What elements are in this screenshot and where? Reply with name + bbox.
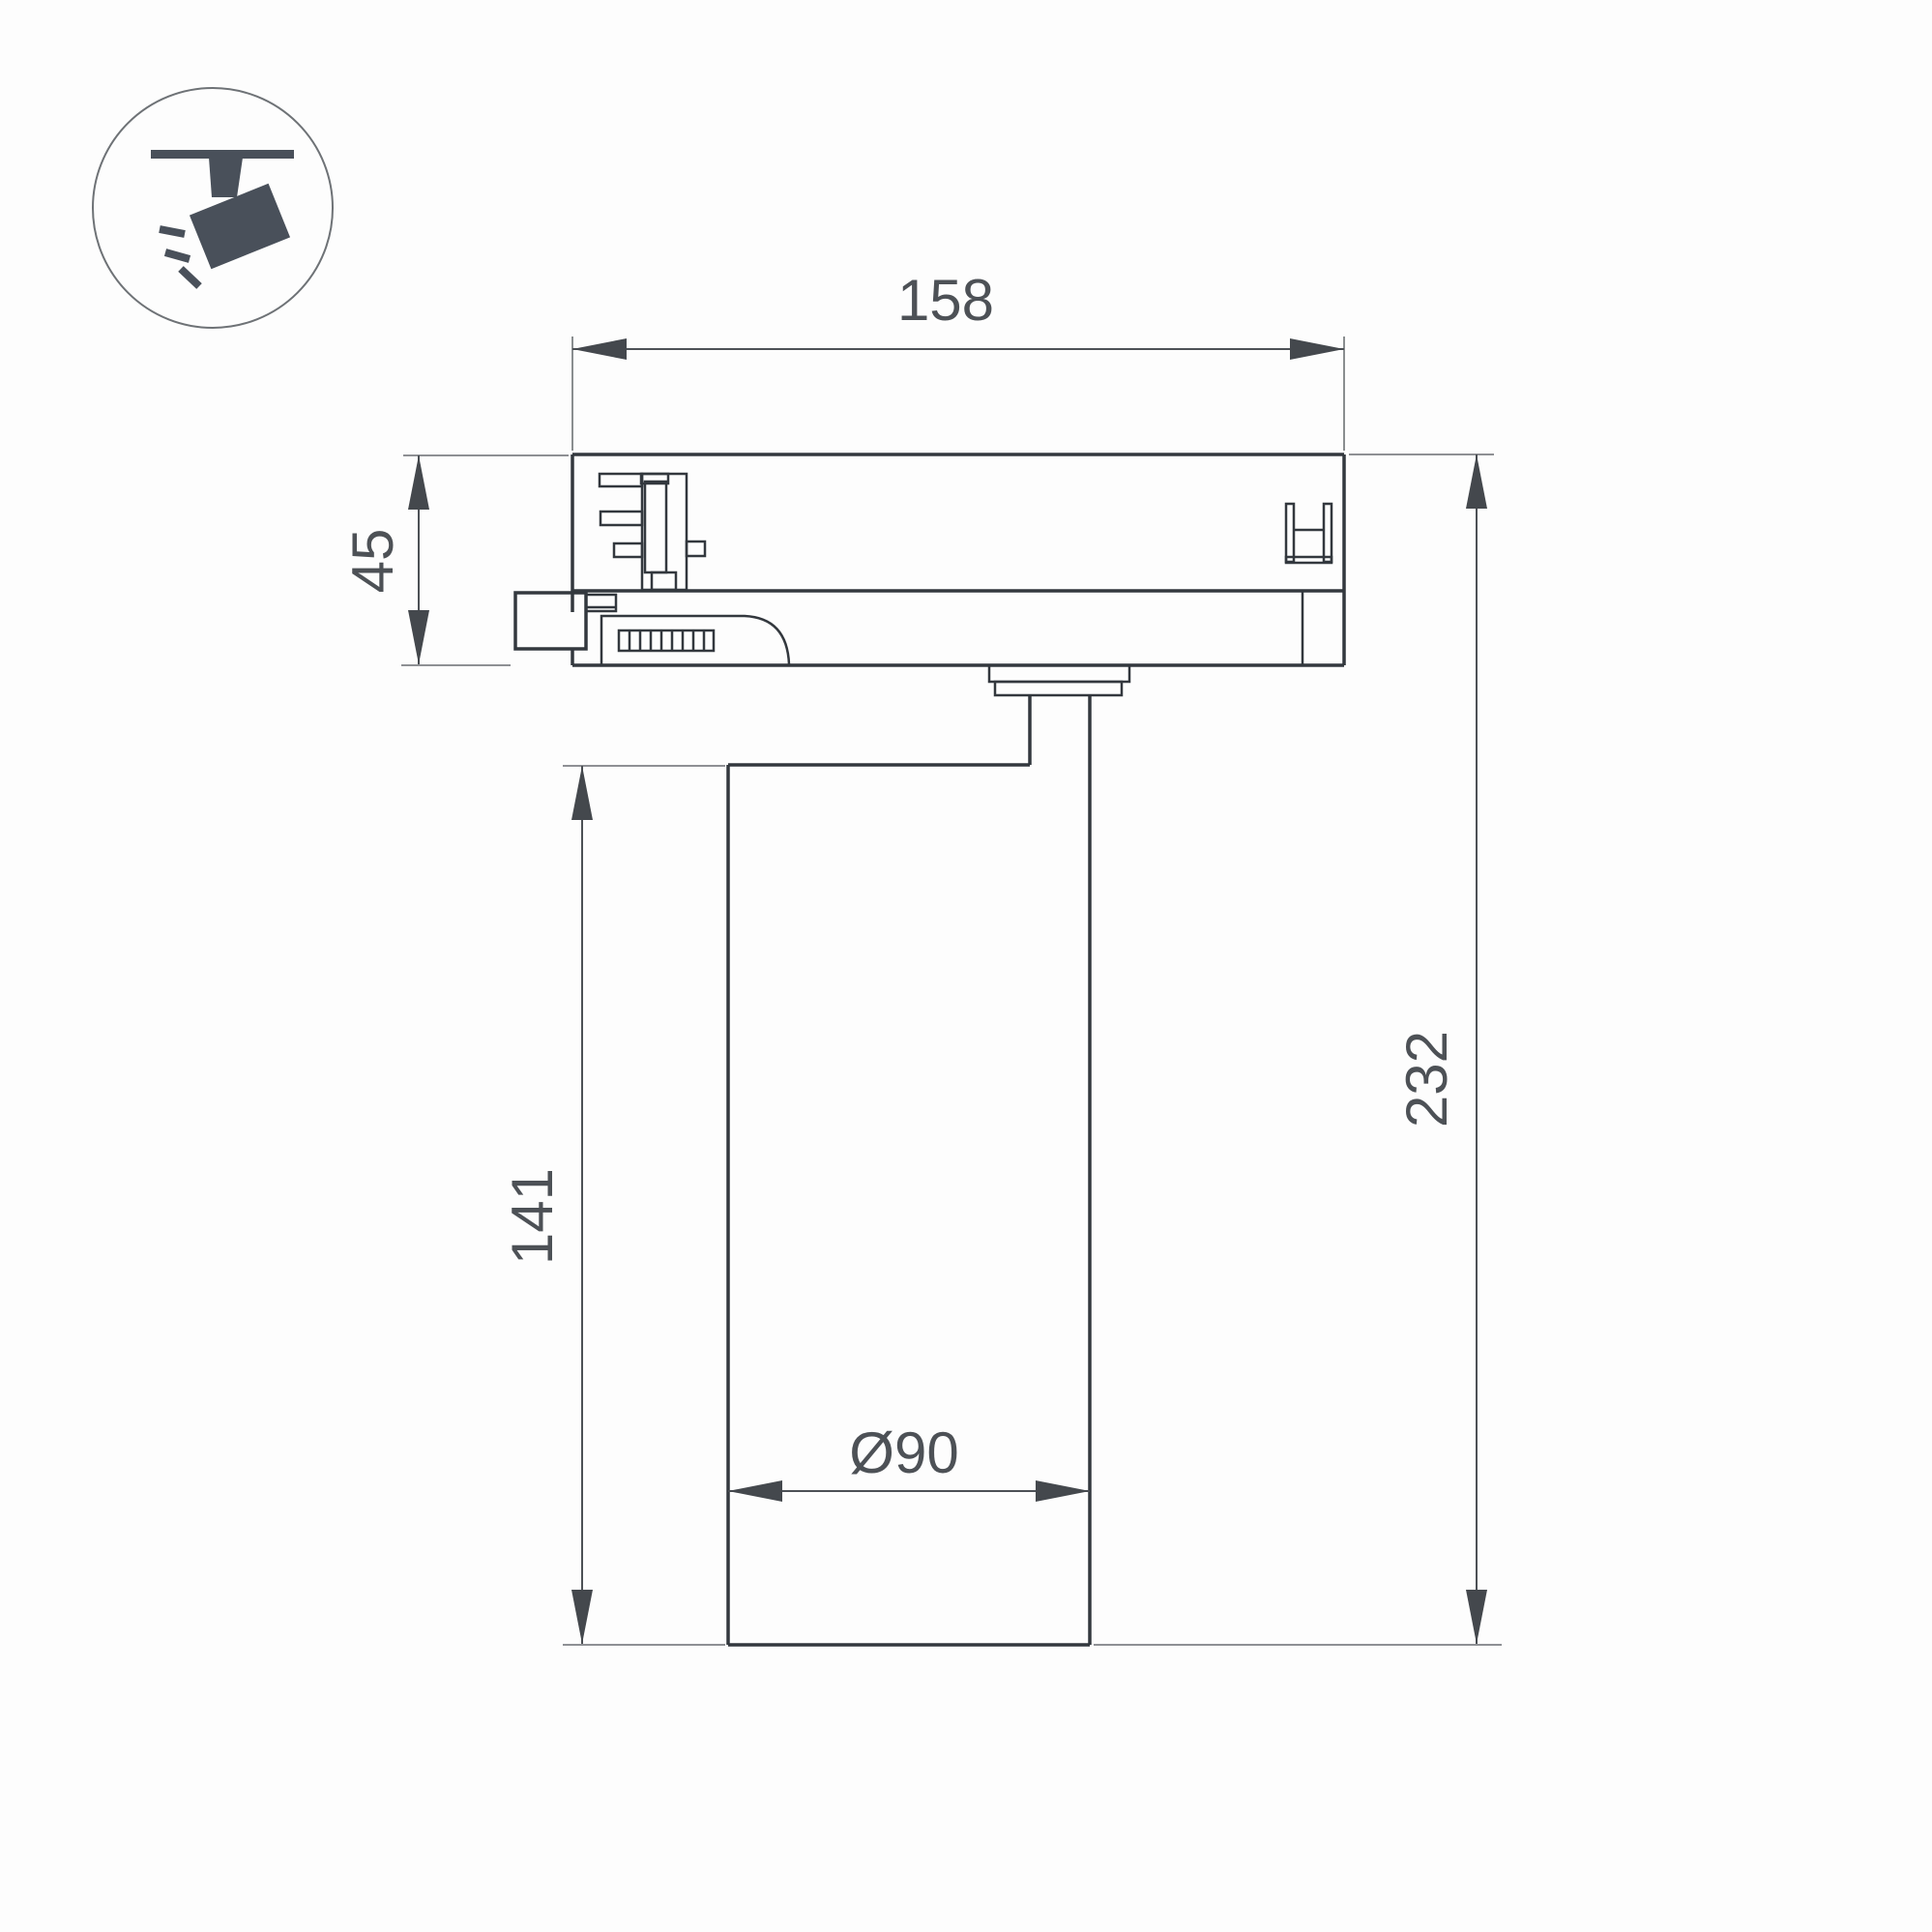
dim-label-158: 158 <box>897 268 994 333</box>
dim-track-width: 158 <box>572 268 1344 451</box>
icon-stem <box>209 158 243 197</box>
lamp-body <box>728 765 1090 1645</box>
adapter-lever <box>601 616 789 665</box>
dim-label-141: 141 <box>500 1168 565 1265</box>
dimension-drawing: 158 45 141 232 Ø90 <box>0 0 1932 1932</box>
dim-body-height: 141 <box>500 766 725 1645</box>
dim-adapter-height: 45 <box>340 455 569 665</box>
adapter-clip-detail <box>1286 504 1332 563</box>
dim-label-45: 45 <box>340 529 405 594</box>
dim-label-232: 232 <box>1394 1031 1459 1127</box>
neck-joint <box>989 665 1129 765</box>
adapter-contact-assembly <box>600 474 705 590</box>
dim-total-height: 232 <box>1094 454 1502 1645</box>
track-adapter-outline <box>572 454 1344 665</box>
icon-track-bar <box>151 150 294 159</box>
track-spotlight-icon <box>93 88 333 328</box>
dim-label-diameter: Ø90 <box>849 1420 958 1485</box>
dim-body-diameter: Ø90 <box>728 1420 1090 1502</box>
